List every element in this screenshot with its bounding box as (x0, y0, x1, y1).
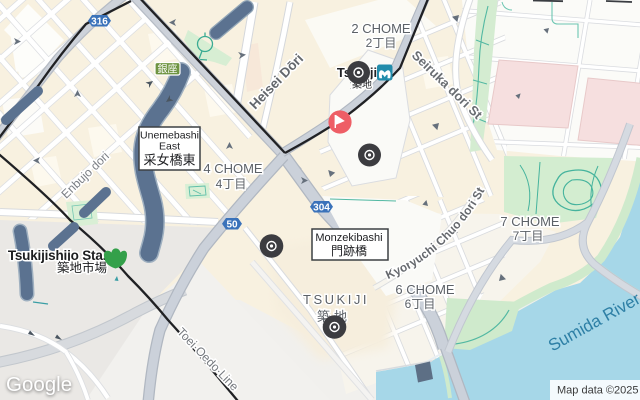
svg-text:2 CHOME: 2 CHOME (351, 21, 411, 36)
svg-text:6丁目: 6丁目 (405, 297, 436, 311)
svg-text:TSUKIJI: TSUKIJI (303, 292, 369, 307)
svg-text:6 CHOME: 6 CHOME (395, 282, 455, 297)
svg-text:316: 316 (91, 17, 108, 28)
svg-text:7 CHOME: 7 CHOME (500, 214, 560, 229)
svg-text:4丁目: 4丁目 (216, 177, 247, 191)
svg-text:4 CHOME: 4 CHOME (203, 161, 263, 176)
svg-text:2丁目: 2丁目 (366, 36, 397, 50)
svg-text:Monzekibashi: Monzekibashi (315, 232, 382, 244)
svg-text:銀座: 銀座 (158, 62, 178, 75)
svg-text:Google: Google (6, 373, 72, 396)
svg-text:Map data ©2025: Map data ©2025 (557, 385, 639, 397)
svg-text:East: East (159, 141, 180, 153)
svg-text:304: 304 (313, 203, 330, 214)
svg-text:築地市場: 築地市場 (57, 260, 107, 275)
svg-text:門跡橋: 門跡橋 (331, 243, 367, 258)
svg-text:7丁目: 7丁目 (513, 229, 544, 243)
svg-text:50: 50 (226, 220, 238, 231)
svg-text:采女橋東: 采女橋東 (143, 153, 195, 168)
